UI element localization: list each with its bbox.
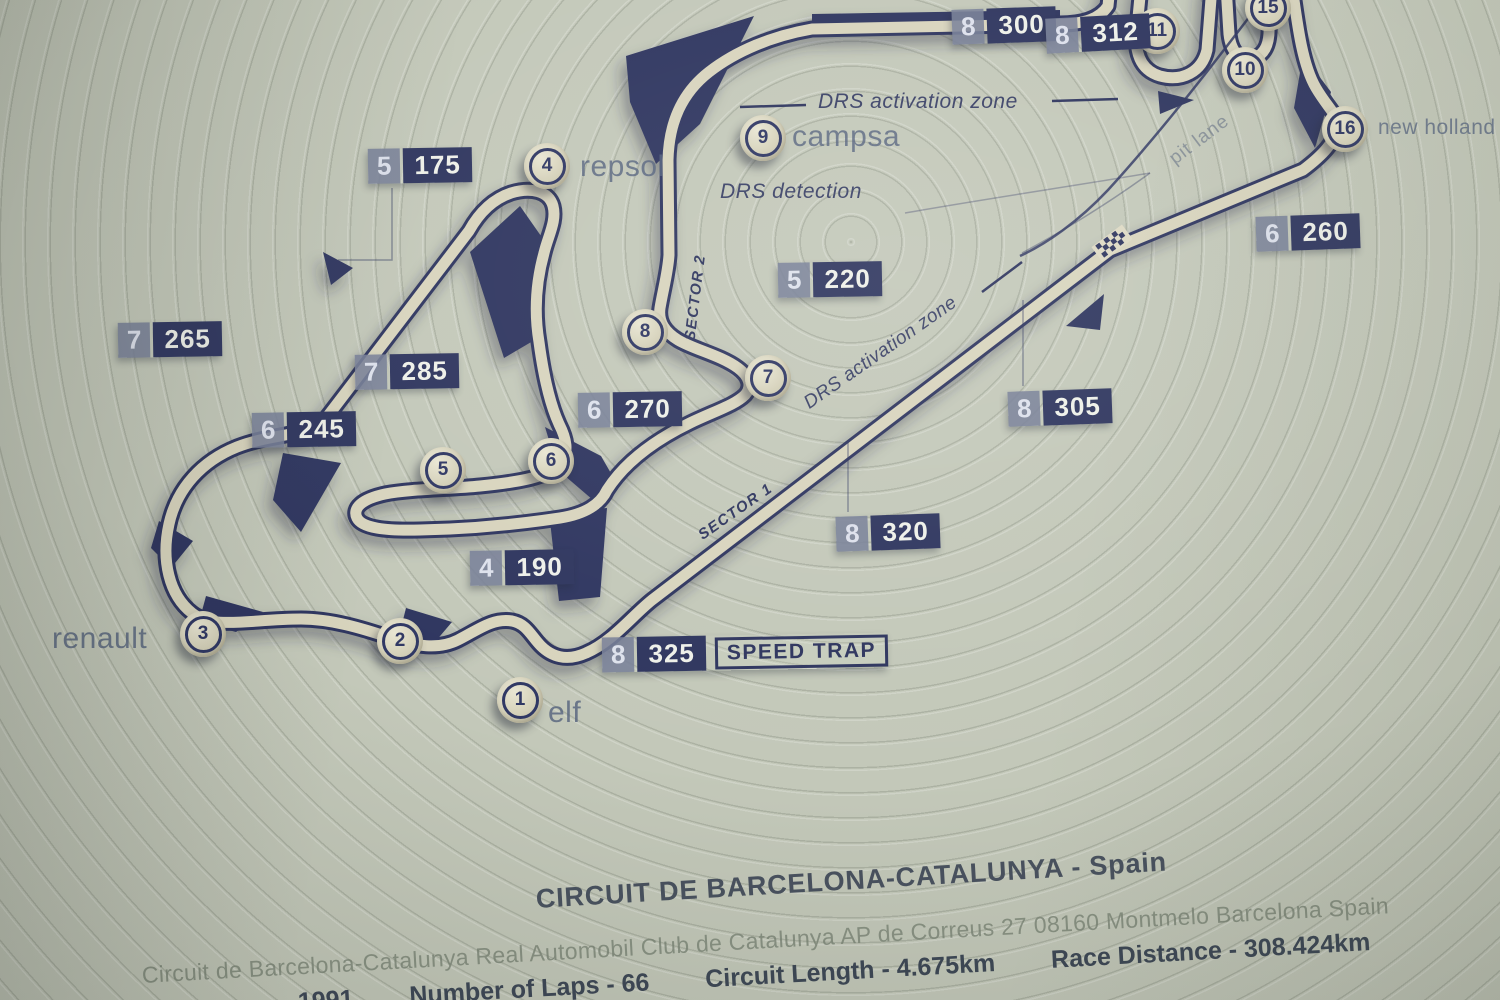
gear-value: 4 (470, 550, 503, 586)
first-gp-year: 1991 (297, 985, 354, 1000)
speed-value: 265 (153, 321, 222, 357)
turn-marker-10: 10 (1222, 47, 1268, 93)
speed-badge-speed-trap: 8325SPEED TRAP (602, 633, 889, 673)
gear-value: 8 (951, 9, 985, 45)
speed-badge-t3-exit: 6245 (252, 411, 356, 448)
turn-marker-5: 5 (420, 447, 466, 493)
speed-badge-t9: 5220 (778, 261, 882, 298)
turn-marker-9: 9 (740, 115, 786, 161)
corner-label-campsa: campsa (792, 120, 900, 154)
speed-badge-t4: 5175 (368, 147, 472, 184)
speed-badge-straight-1: 8305 (1007, 388, 1112, 427)
turn-marker-8: 8 (622, 309, 668, 355)
direction-arrows (1066, 91, 1194, 330)
speed-badge-top-1: 8300 (951, 6, 1056, 45)
speed-value: 285 (390, 353, 459, 389)
corner-label-repsol: repsol (580, 150, 665, 184)
turn-marker-3: 3 (180, 611, 226, 657)
turn-number: 5 (425, 452, 462, 489)
speed-badge-straight-2: 8320 (835, 513, 940, 552)
speed-trap-label: SPEED TRAP (715, 634, 889, 669)
speed-value: 175 (403, 147, 472, 183)
speed-badge-top-2: 8312 (1045, 13, 1151, 53)
speed-badge-t16: 6260 (1255, 213, 1360, 252)
speed-value: 325 (637, 636, 706, 672)
speed-value: 320 (871, 513, 941, 550)
turn-number: 10 (1227, 52, 1264, 89)
gear-value: 8 (835, 516, 869, 552)
race-direction-arrow (1066, 294, 1104, 330)
turn-number: 8 (627, 314, 664, 351)
gear-value: 8 (1007, 391, 1041, 427)
turn-number: 2 (382, 623, 419, 660)
speed-value: 305 (1043, 388, 1113, 425)
corner-label-new-holland: new holland (1378, 116, 1496, 140)
speed-badge-t4-exit: 7285 (355, 353, 459, 390)
speed-badge-t3: 7265 (118, 321, 222, 358)
gear-value: 6 (252, 412, 285, 448)
gear-value: 7 (118, 322, 151, 358)
turn-marker-2: 2 (377, 618, 423, 664)
corner-label-renault: renault (52, 622, 147, 656)
speed-value: 220 (813, 261, 882, 297)
turn-number: 15 (1250, 0, 1287, 27)
turn-number: 1 (502, 682, 539, 719)
drs-activation-zone-top-label: DRS activation zone (818, 90, 1018, 114)
turn-number: 6 (533, 443, 570, 480)
circuit-poster: 1 2 3 4 5 6 7 8 9 10 11 15 16 elf renaul… (0, 0, 1500, 1000)
speed-value: 270 (613, 391, 682, 427)
drs-detection-label: DRS detection (720, 180, 862, 204)
gear-value: 8 (602, 637, 635, 673)
speed-badge-t2: 4190 (470, 549, 574, 586)
gear-value: 5 (368, 148, 401, 184)
speed-value: 260 (1291, 213, 1361, 250)
speed-value: 312 (1081, 13, 1151, 52)
turn-number: 16 (1327, 111, 1364, 148)
turn-number: 9 (745, 120, 782, 157)
turn-marker-4: 4 (524, 143, 570, 189)
gear-value: 6 (1255, 216, 1289, 252)
turn-marker-7: 7 (745, 355, 791, 401)
speed-value: 245 (287, 411, 356, 447)
corner-label-elf: elf (548, 696, 581, 730)
drs-detection-line (905, 173, 1150, 213)
turn-number: 4 (529, 148, 566, 185)
gear-value: 5 (778, 262, 811, 298)
turn-marker-16: 16 (1322, 106, 1368, 152)
gear-value: 7 (355, 354, 388, 390)
turn-marker-1: 1 (497, 677, 543, 723)
speed-value: 190 (505, 549, 574, 585)
turn-marker-6: 6 (528, 438, 574, 484)
speed-badge-t7: 6270 (578, 391, 682, 428)
turn-number: 3 (185, 616, 222, 653)
gear-value: 8 (1045, 17, 1079, 54)
gear-value: 6 (578, 392, 611, 428)
turn-number: 7 (750, 360, 787, 397)
